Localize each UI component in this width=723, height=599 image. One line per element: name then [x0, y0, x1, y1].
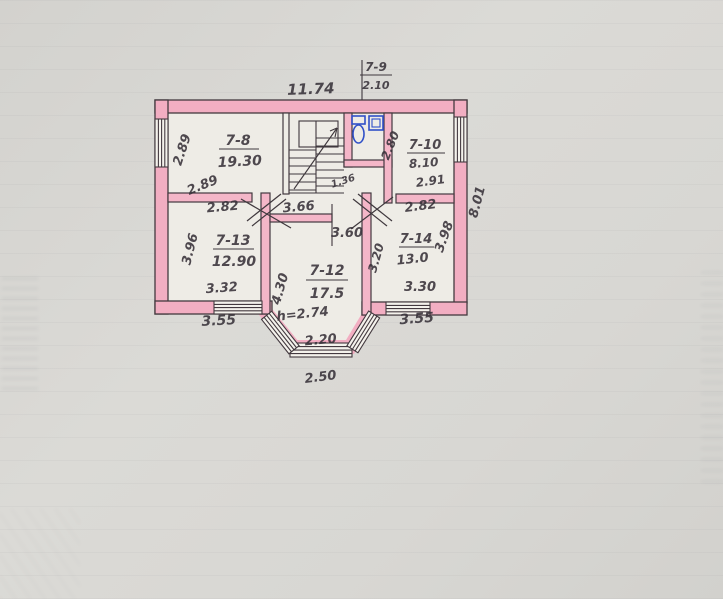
floor-plan-drawing: 11.74 7-9 2.10 2.89 7-8 19.30 2.89 2.80 … [0, 0, 723, 599]
label-room-7-12-width: 2.20 [304, 332, 337, 350]
label-room-7-14-id: 7-14 [400, 232, 433, 247]
label-wc-area: 2.10 [362, 79, 389, 92]
label-room-7-13-width: 3.32 [205, 280, 238, 297]
label-room-7-13-area: 12.90 [212, 254, 257, 270]
wall-top [155, 100, 467, 113]
label-hall-width: 3.66 [282, 199, 315, 217]
wall-stairs-left [283, 113, 289, 194]
scanned-floor-plan-sheet: 11.74 7-9 2.10 2.89 7-8 19.30 2.89 2.80 … [0, 0, 723, 599]
label-hall-opening: 3.60 [331, 226, 363, 241]
label-room-7-8-area: 19.30 [217, 153, 262, 171]
label-room-7-10-id: 7-10 [409, 138, 442, 153]
label-room-7-13-top: 2.82 [206, 199, 239, 217]
label-wc-id: 7-9 [365, 60, 387, 74]
label-room-7-10-area: 8.10 [408, 155, 439, 171]
label-room-7-12-area: 17.5 [310, 286, 345, 302]
label-room-7-13-id: 7-13 [215, 233, 250, 249]
window-right [454, 117, 467, 162]
label-room-7-8-id: 7-8 [225, 133, 251, 149]
label-bay-width: 2.50 [304, 368, 338, 387]
wall-wc-left [344, 113, 352, 167]
label-top-width: 11.74 [287, 79, 335, 99]
window-left [155, 119, 168, 167]
label-room-7-12-id: 7-12 [309, 263, 344, 279]
label-room-7-14-outer: 3.55 [399, 310, 435, 328]
label-room-7-13-outer: 3.55 [201, 312, 237, 330]
label-room-7-14-width: 3.30 [404, 280, 436, 295]
label-right-side-height: 8.01 [466, 185, 489, 220]
